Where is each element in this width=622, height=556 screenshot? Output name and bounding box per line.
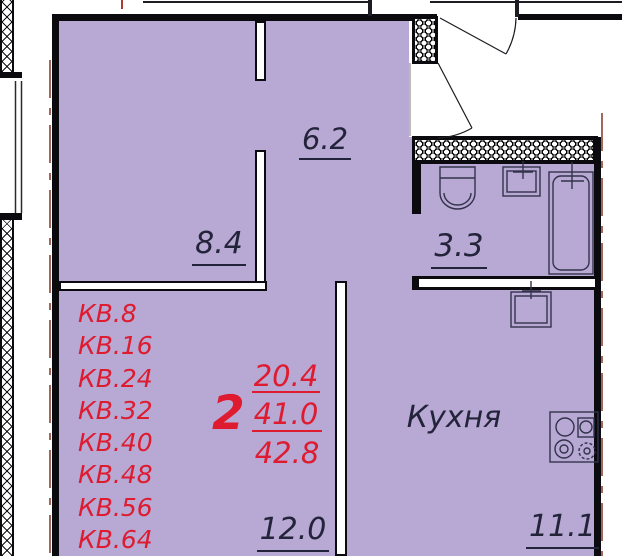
apartment-number: КВ.8 bbox=[78, 298, 153, 330]
hallway-area-label: 6.2 bbox=[293, 124, 357, 160]
bathroom-sink-icon bbox=[503, 161, 540, 196]
apartment-number: КВ.64 bbox=[78, 524, 153, 556]
bedroom-area-label: 8.4 bbox=[190, 228, 248, 266]
kitchen-area-label: 11.1 bbox=[526, 511, 584, 549]
living-area-value: 12.0 bbox=[257, 514, 330, 552]
fraction-line-2 bbox=[252, 430, 322, 432]
apartment-number-list: КВ.8 КВ.16 КВ.24 КВ.32 КВ.40 КВ.48 КВ.56… bbox=[78, 298, 153, 556]
toilet-icon bbox=[440, 167, 475, 209]
apartment-number: КВ.16 bbox=[78, 330, 153, 362]
window-symbol bbox=[16, 81, 22, 213]
rooms-count: 2 bbox=[212, 386, 245, 441]
stove-icon bbox=[550, 412, 598, 462]
bathtub-icon bbox=[549, 162, 593, 274]
total-area-sum: 42.8 bbox=[253, 436, 321, 470]
apartment-number: КВ.40 bbox=[78, 427, 153, 459]
kitchen-sink-icon bbox=[511, 281, 551, 327]
apartment-number: КВ.48 bbox=[78, 459, 153, 491]
apartment-number: КВ.32 bbox=[78, 395, 153, 427]
floor-area-sum: 41.0 bbox=[253, 397, 319, 431]
bedroom-area-value: 8.4 bbox=[192, 228, 246, 266]
living-area-label: 12.0 bbox=[254, 514, 332, 552]
kitchen-name-value: Кухня bbox=[407, 400, 501, 435]
living-area-sum: 20.4 bbox=[253, 359, 319, 393]
interior-door-swing bbox=[410, 63, 472, 138]
floor-plan: 6.2 8.4 3.3 12.0 11.1 Кухня КВ.8 КВ.16 К… bbox=[0, 0, 622, 556]
kitchen-name-label: Кухня bbox=[402, 402, 506, 434]
hallway-area-value: 6.2 bbox=[299, 124, 351, 160]
apartment-number: КВ.24 bbox=[78, 363, 153, 395]
bathroom-area-value: 3.3 bbox=[431, 230, 486, 269]
fraction-line-1 bbox=[252, 391, 320, 393]
bathroom-area-label: 3.3 bbox=[430, 230, 488, 269]
apartment-number: КВ.56 bbox=[78, 492, 153, 524]
entry-door-swing bbox=[440, 18, 516, 54]
kitchen-area-value: 11.1 bbox=[526, 511, 599, 549]
